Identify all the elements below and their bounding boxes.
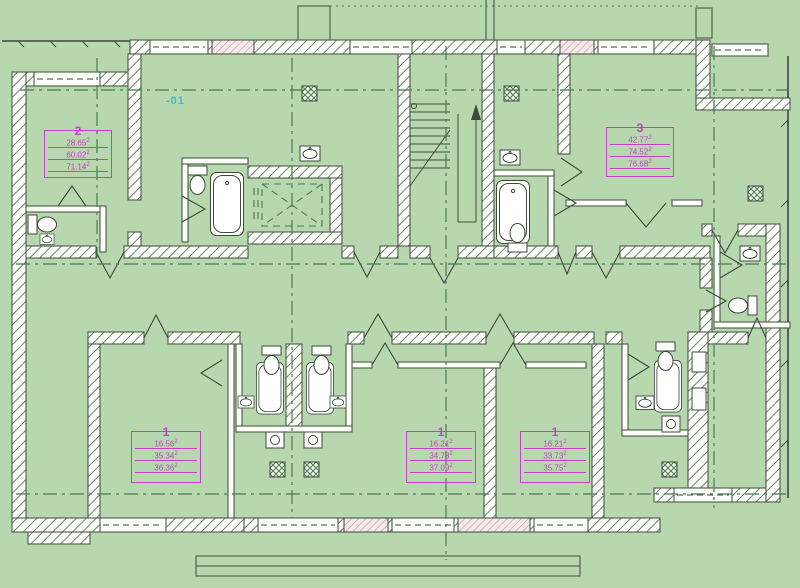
- toilet-icon: [508, 224, 527, 253]
- apartment-area: 76.682: [610, 157, 670, 169]
- apartment-area: 36.362: [135, 461, 197, 473]
- toilet-icon: [656, 342, 675, 371]
- apartment-label-1a: 1 16.562 35.342 36.362: [131, 431, 201, 483]
- apartment-area: 74.522: [610, 145, 670, 157]
- toilet-icon: [312, 346, 331, 375]
- vent-shaft-icon: [270, 462, 285, 477]
- apartment-area: 33.732: [524, 449, 586, 461]
- toilet-icon: [262, 346, 281, 375]
- vent-shaft-icon: [748, 186, 763, 201]
- washing-machine-icon: [266, 432, 284, 448]
- apartment-area: 34.782: [410, 449, 472, 461]
- apartment-number: 1: [407, 426, 475, 438]
- elevator-symbol: [254, 184, 322, 226]
- toilet-icon: [188, 166, 207, 195]
- apartment-number: 2: [45, 125, 111, 137]
- apartment-area: 71.142: [48, 160, 108, 172]
- sink-icon: [636, 396, 654, 410]
- sink-icon: [238, 396, 254, 408]
- vent-shaft-icon: [304, 462, 319, 477]
- washing-machine-icon: [304, 432, 322, 448]
- vent-shaft-icon: [302, 86, 317, 101]
- sink-icon: [330, 396, 346, 408]
- sink-icon: [500, 150, 520, 165]
- apartment-area: 60.022: [48, 148, 108, 160]
- toilet-icon: [28, 215, 57, 234]
- bathtub-icon: [211, 173, 244, 236]
- washing-machine-icon: [662, 416, 680, 432]
- apartment-number: 1: [521, 426, 589, 438]
- apartment-area: 35.752: [524, 461, 586, 473]
- sink-icon: [740, 246, 760, 261]
- apartment-number: 3: [607, 122, 673, 134]
- doors: [58, 158, 766, 386]
- floor-plan-drawing: [0, 0, 800, 588]
- apartment-label-3: 3 42.772 74.522 76.682: [606, 127, 674, 177]
- apartment-area: 35.342: [135, 449, 197, 461]
- sink-icon: [40, 234, 54, 245]
- sink-icon: [300, 146, 320, 161]
- toilet-icon: [729, 296, 758, 315]
- apartment-number: 1: [132, 426, 200, 438]
- apartment-area: 37.092: [410, 461, 472, 473]
- apartment-label-2: 2 28.652 60.022 71.142: [44, 130, 112, 178]
- floor-plan: 2 28.652 60.022 71.142 3 42.772 74.522 7…: [0, 0, 800, 588]
- vent-shaft-icon: [504, 86, 519, 101]
- floor-level-label: -01: [166, 95, 185, 107]
- vent-shaft-icon: [662, 462, 677, 477]
- apartment-label-1b: 1 16.212 34.782 37.092: [406, 431, 476, 483]
- apartment-label-1c: 1 16.212 33.732 35.752: [520, 431, 590, 483]
